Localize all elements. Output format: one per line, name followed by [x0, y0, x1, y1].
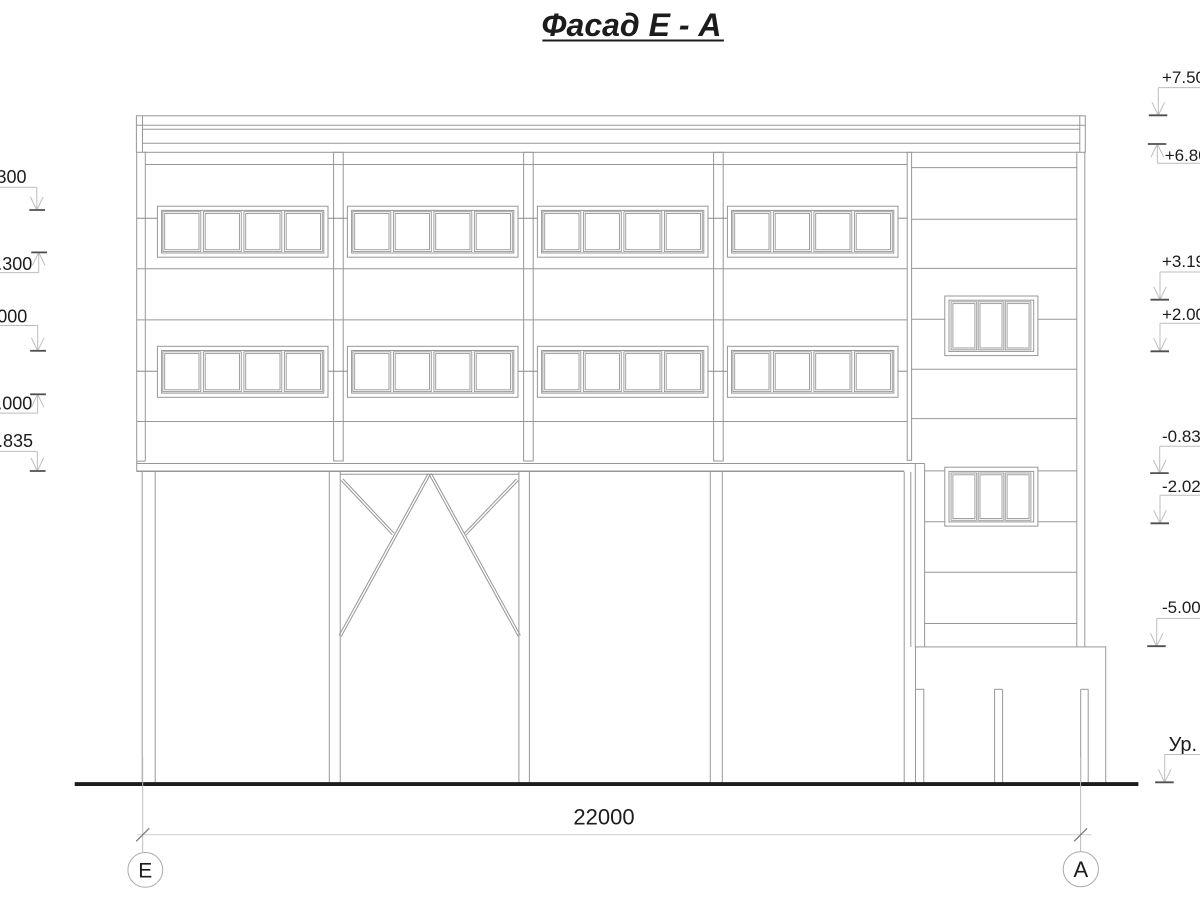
svg-text:-2.020: -2.020 [1162, 477, 1200, 496]
svg-text:-0.835: -0.835 [0, 431, 33, 451]
svg-text:+6.800: +6.800 [1165, 146, 1200, 165]
svg-text:Ур. з.: Ур. з. [1169, 734, 1200, 756]
svg-text:А: А [1073, 857, 1088, 882]
svg-text:+4.300: +4.300 [0, 167, 27, 187]
svg-text:+2.000: +2.000 [1162, 305, 1200, 324]
svg-text:-5.000: -5.000 [1162, 598, 1200, 617]
svg-text:Е: Е [138, 859, 152, 882]
svg-text:+2.000: +2.000 [0, 307, 27, 327]
svg-text:-0.830: -0.830 [1162, 427, 1200, 446]
svg-text:+1.000: +1.000 [0, 394, 32, 414]
svg-text:+7.500: +7.500 [1162, 68, 1200, 87]
svg-text:+3.300: +3.300 [0, 254, 32, 274]
svg-text:+3.190: +3.190 [1162, 252, 1200, 271]
svg-text:22000: 22000 [573, 804, 634, 829]
svg-text:Фасад Е - А: Фасад Е - А [542, 7, 722, 43]
